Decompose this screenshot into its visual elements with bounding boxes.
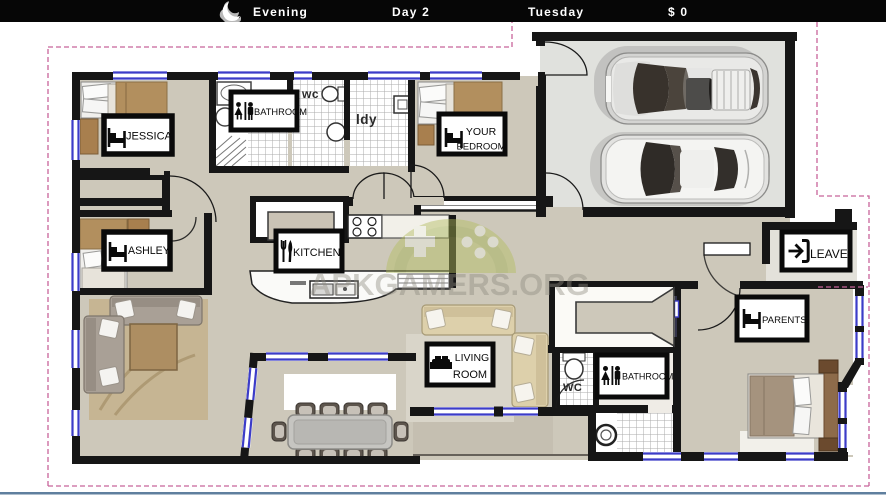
svg-text:BATHROOM: BATHROOM bbox=[254, 107, 307, 117]
svg-text:Tuesday: Tuesday bbox=[528, 5, 584, 19]
svg-text:ROOM: ROOM bbox=[453, 369, 487, 381]
svg-text:BEDROOM: BEDROOM bbox=[456, 142, 505, 153]
svg-text:BATHROOM: BATHROOM bbox=[622, 372, 673, 382]
svg-text:ASHLEY: ASHLEY bbox=[128, 245, 170, 257]
svg-text:$ 0: $ 0 bbox=[668, 5, 688, 19]
svg-text:WC: WC bbox=[563, 382, 582, 394]
svg-text:LIVING: LIVING bbox=[455, 352, 489, 364]
svg-text:wc: wc bbox=[301, 87, 319, 101]
svg-text:Day 2: Day 2 bbox=[392, 5, 430, 19]
svg-text:YOUR: YOUR bbox=[466, 126, 497, 138]
svg-text:JESSICA: JESSICA bbox=[126, 131, 173, 143]
svg-text:KITCHEN: KITCHEN bbox=[293, 247, 340, 259]
svg-text:APKGAMERS.ORG: APKGAMERS.ORG bbox=[309, 267, 590, 302]
svg-text:PARENTS: PARENTS bbox=[762, 315, 807, 326]
svg-text:Evening: Evening bbox=[253, 5, 308, 19]
svg-text:LEAVE: LEAVE bbox=[810, 247, 848, 261]
svg-text:ldy: ldy bbox=[356, 112, 377, 127]
